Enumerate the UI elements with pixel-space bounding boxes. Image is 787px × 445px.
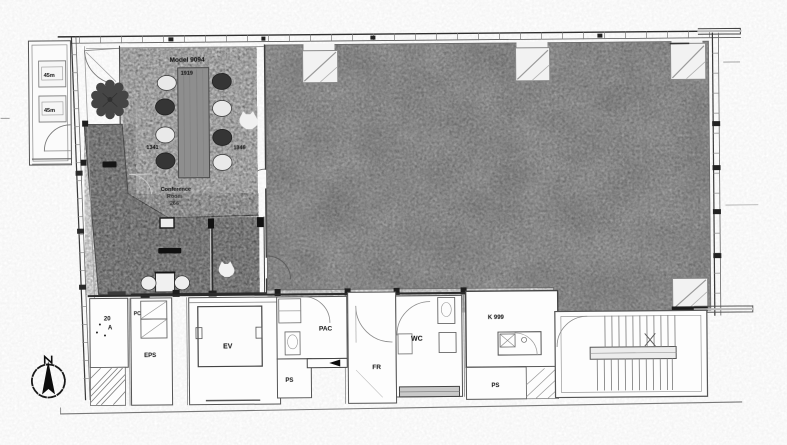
svg-text:K 999: K 999 <box>488 315 505 321</box>
svg-text:FR: FR <box>372 364 381 371</box>
svg-text:Room: Room <box>167 194 183 200</box>
svg-text:266: 266 <box>170 201 179 207</box>
svg-text:45m: 45m <box>44 73 55 79</box>
svg-text:PS: PS <box>491 383 499 389</box>
svg-text:A: A <box>108 325 113 331</box>
svg-text:EV: EV <box>223 343 233 350</box>
svg-text:PAC: PAC <box>319 326 333 333</box>
svg-text:WC: WC <box>411 336 423 343</box>
svg-text:1341: 1341 <box>146 145 158 151</box>
svg-text:1919: 1919 <box>181 71 193 77</box>
svg-text:EPS: EPS <box>144 353 156 359</box>
svg-text:1346: 1346 <box>233 145 245 151</box>
svg-text:PS: PS <box>285 378 293 384</box>
svg-text:Model 9094: Model 9094 <box>170 57 205 64</box>
svg-text:PC: PC <box>134 311 141 317</box>
svg-text:45m: 45m <box>44 108 55 114</box>
svg-text:Conference: Conference <box>161 187 191 193</box>
svg-text:20: 20 <box>104 316 111 322</box>
